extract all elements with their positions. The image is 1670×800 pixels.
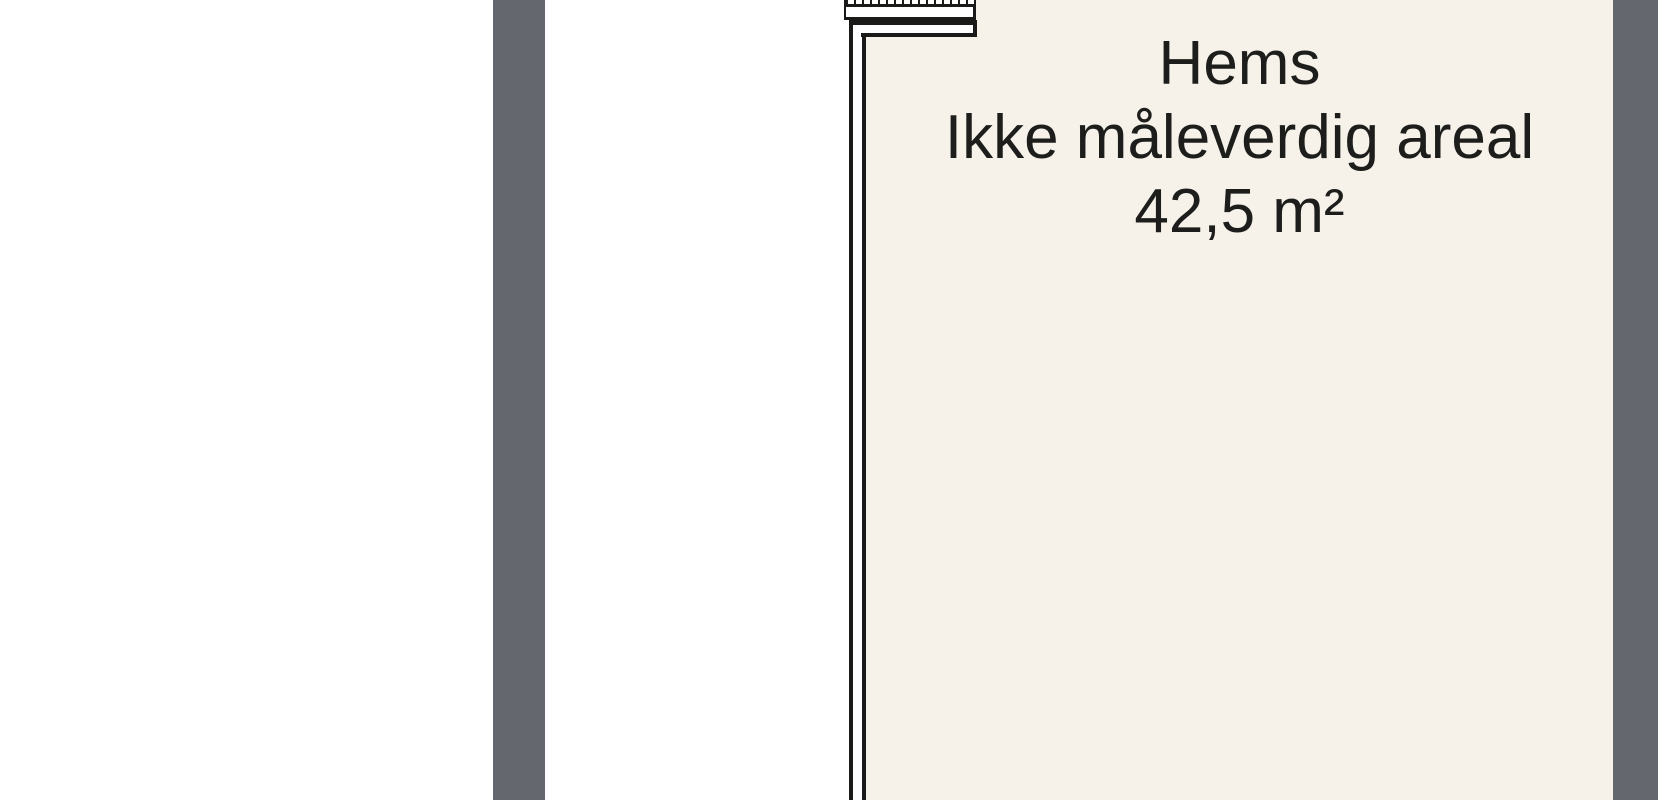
room-label: Hems Ikke måleverdig areal 42,5 m² [866, 27, 1613, 249]
right-section-wall [1613, 0, 1658, 800]
room-note: Ikke måleverdig areal [866, 101, 1613, 175]
room-left-wall-outer-line [849, 25, 853, 800]
stair-steps-hatch [844, 0, 976, 7]
left-section-wall [493, 0, 545, 800]
stair-landing [844, 7, 976, 20]
floor-plan-canvas: Hems Ikke måleverdig areal 42,5 m² [0, 0, 1670, 800]
room-name: Hems [866, 27, 1613, 101]
room-area: 42,5 m² [866, 175, 1613, 249]
